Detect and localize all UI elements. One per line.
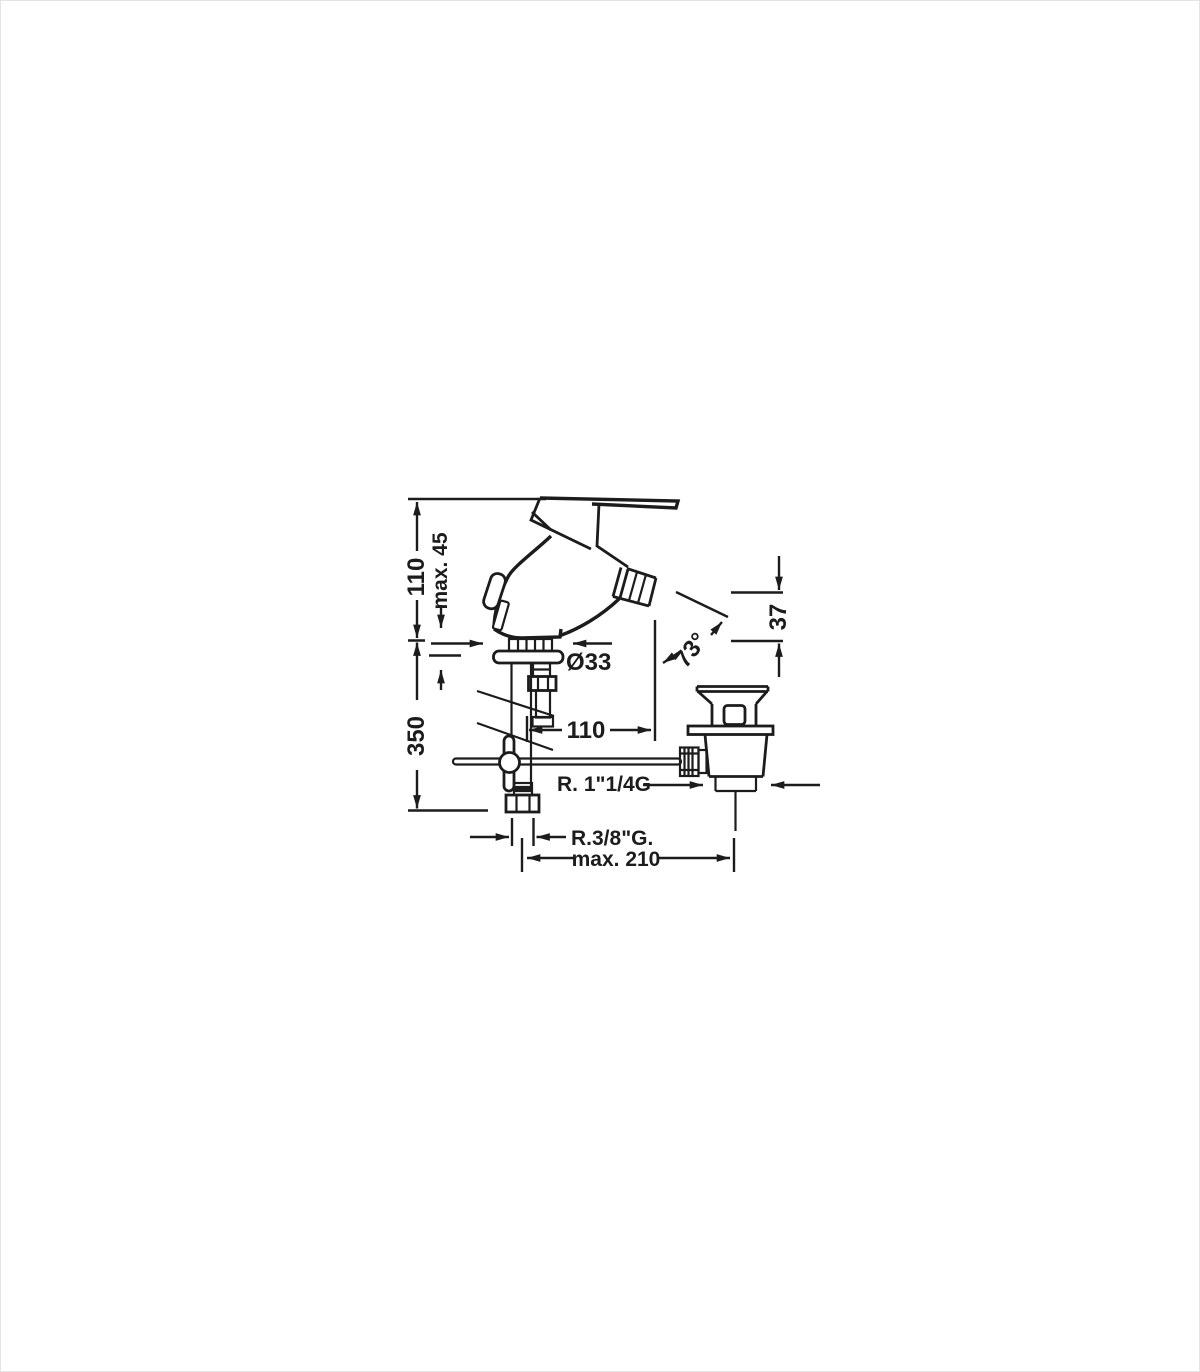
dim-spout-angle: 73° xyxy=(663,592,728,673)
base-mounting-hardware xyxy=(509,639,552,651)
dim-hole-diameter-label: Ø33 xyxy=(566,649,611,676)
handle-top-edge xyxy=(540,498,678,508)
technical-drawing-svg: 110 max. 45 350 Ø33 xyxy=(0,0,1200,1372)
handle-left-tip xyxy=(531,498,591,549)
dim-body-height-label: 110 xyxy=(403,558,430,597)
dim-outlet-height: 37 xyxy=(731,556,792,677)
dim-max-span-label: max. 210 xyxy=(572,848,661,871)
waste-square-hole xyxy=(724,706,745,725)
spout-under-arc xyxy=(559,599,619,636)
dim-spout-reach-label: 110 xyxy=(567,717,606,744)
dim-body-height: 110 xyxy=(403,499,546,641)
product-dimension-sheet: 110 max. 45 350 Ø33 xyxy=(0,0,1200,1372)
horizontal-linkage-rod xyxy=(453,759,681,765)
waste-side-inlet-nut xyxy=(680,748,707,777)
deck-escutcheon-plate xyxy=(494,651,564,663)
dim-under-deck-depth: 350 xyxy=(403,643,488,811)
dim-deck-thickness-label: max. 45 xyxy=(429,532,452,609)
linkage-ball-joint xyxy=(500,753,520,773)
body-base-bottom xyxy=(494,629,561,638)
waste-neck xyxy=(698,692,767,727)
dim-supply-thread: R.3/8"G. xyxy=(470,818,653,850)
pop-up-waste-outline xyxy=(680,687,773,832)
dim-waste-thread-label: R. 1"1/4G xyxy=(557,773,651,796)
waste-lid xyxy=(697,687,768,692)
dim-supply-thread-label: R.3/8"G. xyxy=(571,827,653,850)
handle-stem-edge xyxy=(597,504,628,567)
waste-tailpiece xyxy=(716,777,757,792)
dim-spout-angle-label: 73° xyxy=(669,628,713,673)
dim-under-deck-depth-label: 350 xyxy=(403,716,430,756)
deck-break-line-upper xyxy=(477,691,554,716)
waste-flange xyxy=(688,726,773,735)
dim-outlet-height-label: 37 xyxy=(765,604,792,631)
pop-up-knob xyxy=(482,572,509,631)
dim-deck-thickness: max. 45 xyxy=(429,532,461,690)
waste-body xyxy=(705,735,767,777)
mounting-shank xyxy=(529,663,557,727)
dim-hole-diameter: Ø33 xyxy=(431,644,612,677)
